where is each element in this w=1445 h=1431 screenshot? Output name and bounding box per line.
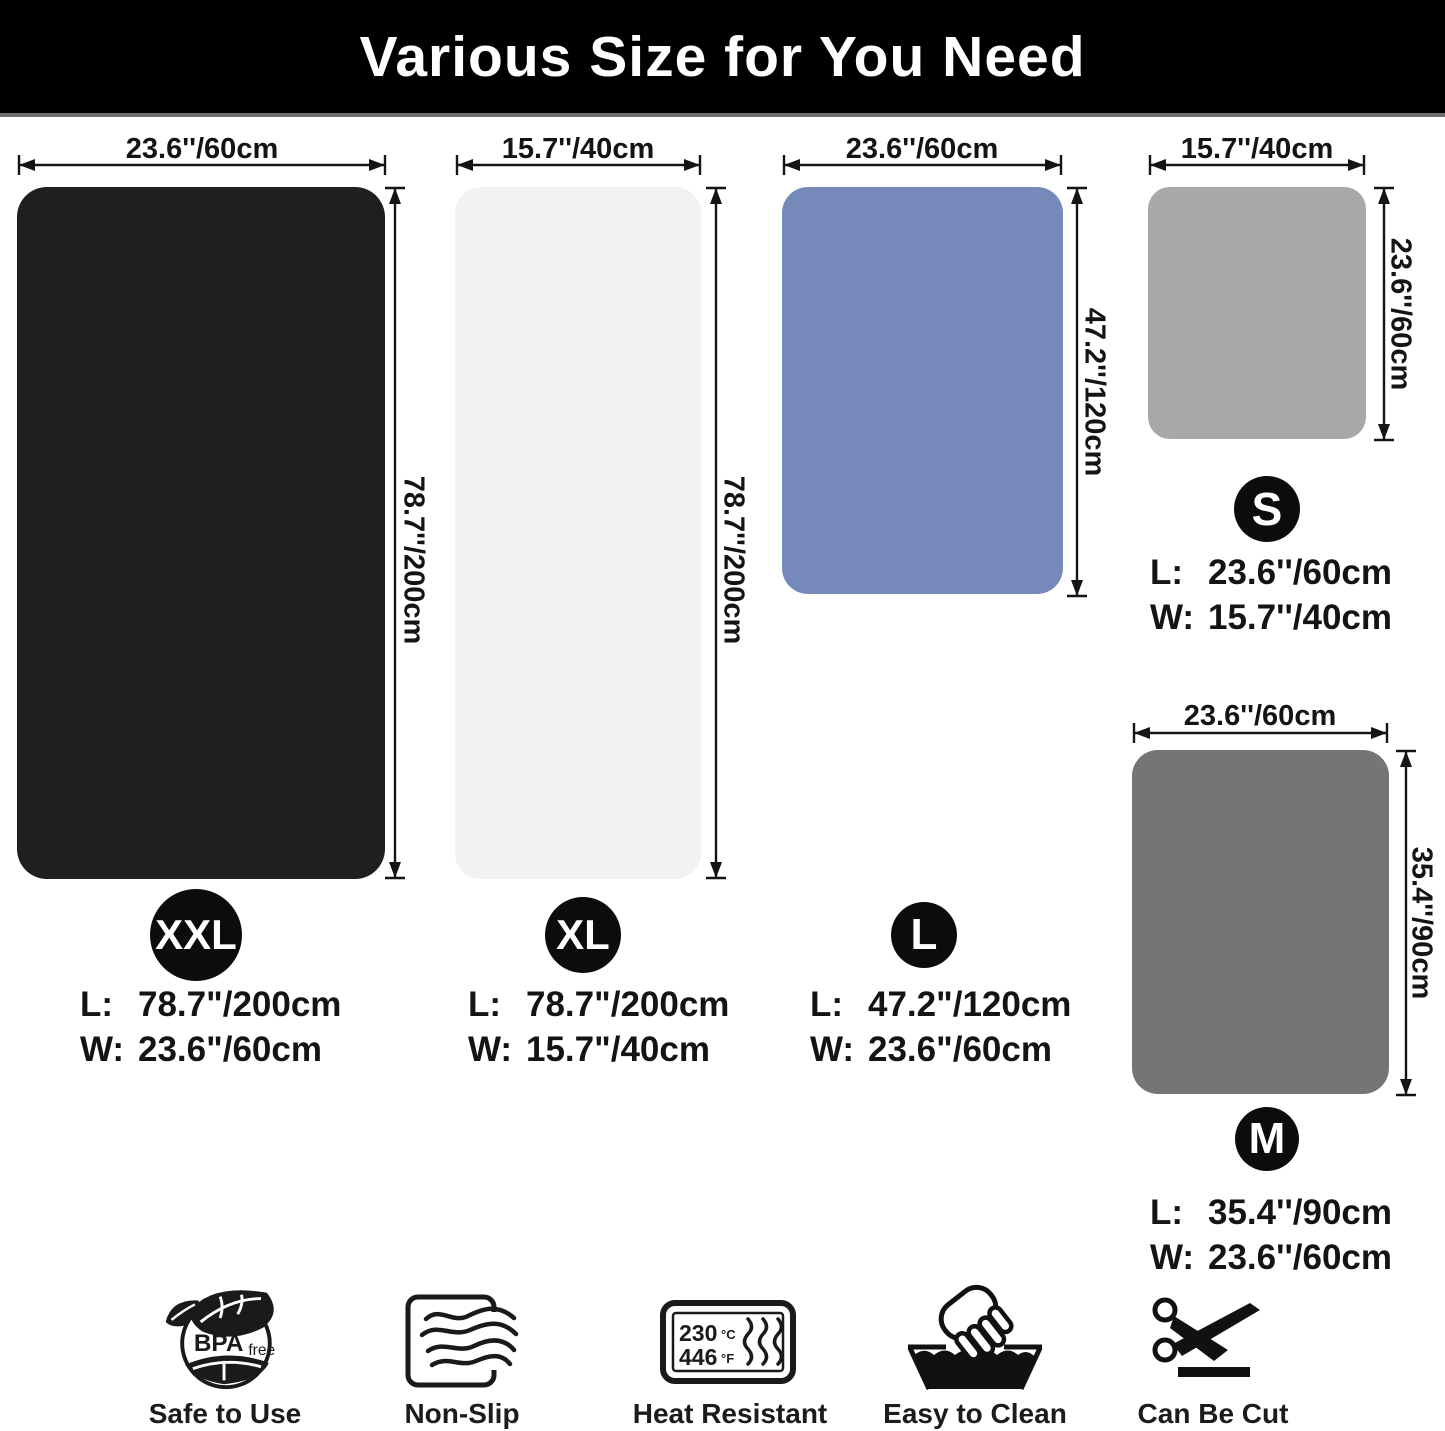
- length-value: 78.7"/200cm: [526, 985, 729, 1024]
- mat-l-sizes: L:47.2"/120cm W:23.6"/60cm: [810, 982, 1071, 1072]
- heat-resistant-icon: 230 °C 446 °F: [660, 1300, 796, 1384]
- length-value: 78.7"/200cm: [138, 985, 341, 1024]
- width-value: 23.6"/60cm: [138, 1030, 322, 1069]
- mat-xxl-badge: XXL: [150, 889, 242, 981]
- mat-s-width-arrow: [1148, 154, 1366, 176]
- length-value: 35.4''/90cm: [1208, 1193, 1392, 1232]
- length-key: L:: [1150, 550, 1208, 595]
- width-key: W:: [80, 1027, 138, 1072]
- mat-xxl-width-arrow: [17, 154, 387, 176]
- mat-s-height-label: 23.6''/60cm: [1384, 238, 1417, 390]
- length-line: L:47.2"/120cm: [810, 982, 1071, 1027]
- mat-xxl-sizes: L:78.7"/200cm W:23.6"/60cm: [80, 982, 341, 1072]
- width-value: 15.7"/40cm: [526, 1030, 710, 1069]
- length-key: L:: [1150, 1190, 1208, 1235]
- width-line: W:15.7''/40cm: [1150, 595, 1392, 640]
- mat-l-badge: L: [891, 902, 957, 968]
- mat-xxl: [17, 187, 385, 879]
- mat-m-height-label: 35.4''/90cm: [1405, 847, 1438, 999]
- mat-m-width-arrow: [1132, 722, 1389, 744]
- bpa-free-text: free: [248, 1342, 275, 1359]
- infographic-canvas: Various Size for You Need 23.6''/60cm 78…: [0, 0, 1445, 1431]
- mat-xl: [455, 187, 701, 879]
- easy-to-clean-icon: [900, 1277, 1050, 1395]
- length-key: L:: [80, 982, 138, 1027]
- width-value: 23.6''/60cm: [1208, 1238, 1392, 1277]
- mat-m-sizes: L:35.4''/90cm W:23.6''/60cm: [1150, 1190, 1392, 1280]
- mat-xl-height-label: 78.7''/200cm: [717, 476, 750, 645]
- width-value: 15.7''/40cm: [1208, 598, 1392, 637]
- mat-l: [782, 187, 1063, 594]
- length-line: L:35.4''/90cm: [1150, 1190, 1392, 1235]
- mat-s-sizes: L:23.6''/60cm W:15.7''/40cm: [1150, 550, 1392, 640]
- non-slip-icon: [402, 1292, 522, 1392]
- feature-caption-non-slip: Non-Slip: [404, 1398, 519, 1430]
- length-value: 47.2"/120cm: [868, 985, 1071, 1024]
- temp-fahrenheit-value: 446: [679, 1344, 717, 1370]
- length-line: L:23.6''/60cm: [1150, 550, 1392, 595]
- width-line: W:23.6"/60cm: [810, 1027, 1071, 1072]
- width-key: W:: [1150, 1235, 1208, 1280]
- width-key: W:: [810, 1027, 868, 1072]
- mat-xl-width-arrow: [455, 154, 702, 176]
- width-line: W:23.6"/60cm: [80, 1027, 341, 1072]
- mat-xl-badge: XL: [545, 897, 621, 973]
- mat-s-badge: S: [1234, 476, 1300, 542]
- length-line: L:78.7"/200cm: [80, 982, 341, 1027]
- width-key: W:: [1150, 595, 1208, 640]
- temp-fahrenheit-unit: °F: [721, 1351, 734, 1366]
- length-value: 23.6''/60cm: [1208, 553, 1392, 592]
- mat-m: [1132, 750, 1389, 1094]
- feature-caption-can-be-cut: Can Be Cut: [1138, 1398, 1289, 1430]
- bpa-free-icon: BPA free: [152, 1281, 298, 1395]
- length-line: L:78.7"/200cm: [468, 982, 729, 1027]
- temp-celsius-value: 230: [679, 1320, 717, 1346]
- mat-l-height-label: 47.2''/120cm: [1078, 308, 1111, 477]
- temp-celsius-unit: °C: [721, 1327, 736, 1342]
- width-line: W:23.6''/60cm: [1150, 1235, 1392, 1280]
- feature-caption-easy-to-clean: Easy to Clean: [883, 1398, 1067, 1430]
- scissors-icon: [1148, 1288, 1278, 1388]
- feature-caption-heat-resistant: Heat Resistant: [633, 1398, 828, 1430]
- width-key: W:: [468, 1027, 526, 1072]
- feature-caption-safe-to-use: Safe to Use: [149, 1398, 302, 1430]
- mat-xxl-height-label: 78.7''/200cm: [397, 476, 430, 645]
- width-value: 23.6"/60cm: [868, 1030, 1052, 1069]
- bpa-text: BPA: [194, 1330, 244, 1357]
- mat-l-width-arrow: [782, 154, 1063, 176]
- mat-s: [1148, 187, 1366, 439]
- length-key: L:: [468, 982, 526, 1027]
- title-banner: Various Size for You Need: [0, 0, 1445, 117]
- mat-m-badge: M: [1235, 1107, 1299, 1171]
- mat-xl-sizes: L:78.7"/200cm W:15.7"/40cm: [468, 982, 729, 1072]
- length-key: L:: [810, 982, 868, 1027]
- width-line: W:15.7"/40cm: [468, 1027, 729, 1072]
- page-title: Various Size for You Need: [359, 24, 1085, 90]
